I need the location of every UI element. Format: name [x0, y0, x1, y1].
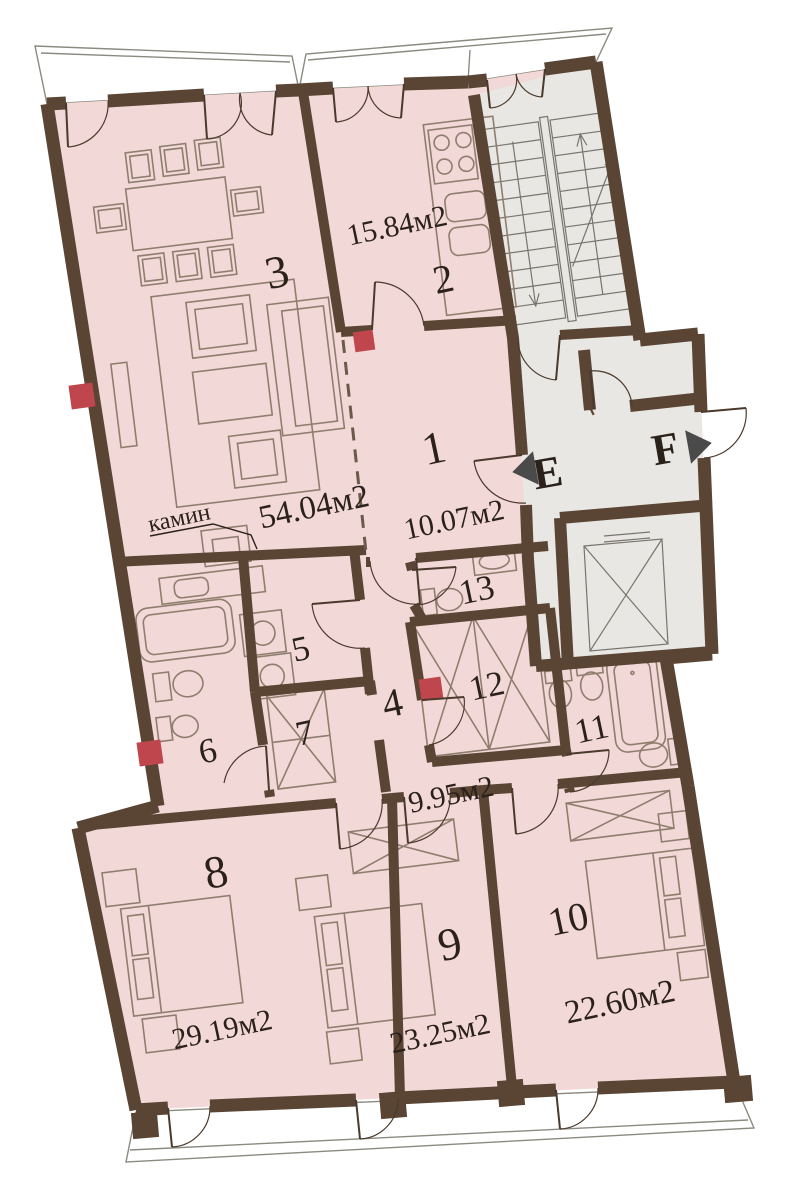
- floor-plan-page: 3 2 1 13 12 5 6 7 4 11 8 9 10 54.04м2 15…: [0, 0, 800, 1195]
- floor-plan-canvas: 3 2 1 13 12 5 6 7 4 11 8 9 10 54.04м2 15…: [0, 0, 800, 1195]
